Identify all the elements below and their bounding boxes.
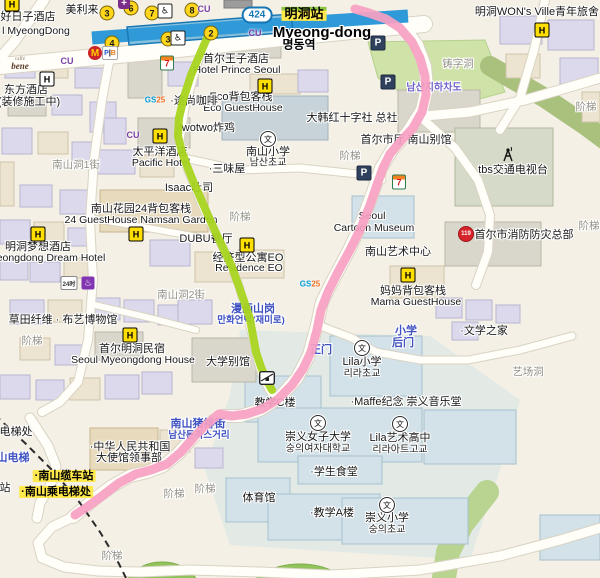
gs25-icon[interactable]: GS25 [300, 280, 320, 289]
hotel-icon[interactable]: H [40, 72, 55, 87]
school-icon[interactable]: 文 [379, 497, 395, 513]
map-canvas[interactable]: 美利来好日子酒店l MyeongDong东方酒店(装修施工中)明洞WON's V… [0, 0, 600, 578]
parking-icon[interactable]: P [381, 75, 396, 90]
hotel-icon[interactable]: H [153, 129, 168, 144]
elevator-access-icon[interactable]: ♿ [171, 31, 186, 46]
hotel-icon[interactable]: H [5, 0, 20, 12]
cu-store-icon[interactable]: CU [61, 56, 74, 66]
exit-3-marker[interactable]: 3 [100, 6, 115, 21]
cu-store-icon[interactable]: CU [249, 28, 262, 38]
parking-icon[interactable]: P [371, 36, 386, 51]
hotel-icon[interactable]: H [401, 268, 416, 283]
exit-2-marker[interactable]: 2 [204, 26, 219, 41]
cable-car-icon[interactable] [259, 371, 275, 385]
school-icon[interactable]: 文 [354, 340, 370, 356]
gs25-icon[interactable]: GS25 [145, 96, 165, 105]
open-24h-icon[interactable]: 24时 [61, 276, 78, 290]
school-icon[interactable]: 文 [260, 131, 276, 147]
parking-icon[interactable]: P [357, 166, 372, 181]
pb-icon[interactable]: P|B [102, 46, 118, 60]
spa-icon[interactable]: ♨ [82, 277, 95, 290]
cu-store-icon[interactable]: CU [127, 130, 140, 140]
school-icon[interactable]: 文 [310, 415, 326, 431]
mcdonalds-icon[interactable]: M [88, 46, 102, 60]
subway-line-badge[interactable]: 424 [242, 7, 273, 24]
hotel-icon[interactable]: H [240, 238, 255, 253]
antenna-icon[interactable] [500, 147, 516, 163]
subway-station-icon[interactable]: + [118, 0, 130, 9]
hotel-icon[interactable]: H [31, 227, 46, 242]
caffe-bene-icon[interactable]: caffébene [11, 57, 29, 71]
elevator-access-icon[interactable]: ♿ [158, 4, 173, 19]
school-icon[interactable]: 文 [392, 416, 408, 432]
cu-store-icon[interactable]: CU [198, 4, 211, 14]
seven-eleven-icon[interactable]: 7 [392, 175, 406, 190]
hotel-icon[interactable]: H [129, 227, 144, 242]
fire-station-icon[interactable]: 119 [458, 226, 474, 242]
map-icons-layer: HHHHHHHHHH3678234♿♿+424PPP文文文文文119CUCUCU… [0, 0, 600, 578]
hotel-icon[interactable]: H [123, 328, 138, 343]
hotel-icon[interactable]: H [535, 23, 550, 38]
hotel-icon[interactable]: H [258, 79, 273, 94]
seven-eleven-icon[interactable]: 7 [160, 56, 174, 71]
